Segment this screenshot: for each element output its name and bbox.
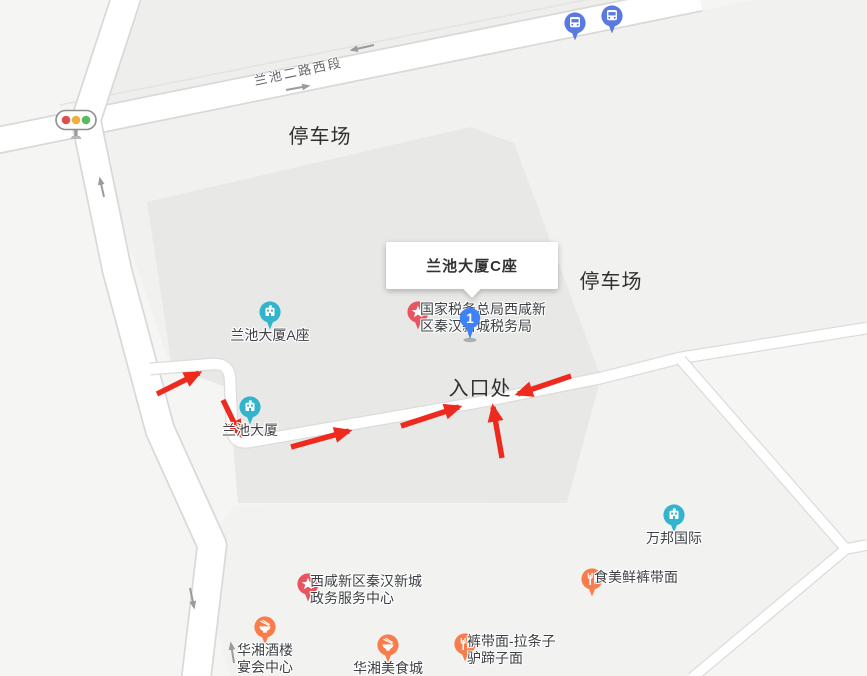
bus-icon <box>562 11 588 45</box>
poi-label: 华湘酒楼宴会中心 <box>237 642 293 676</box>
bus-icon <box>599 4 625 38</box>
poi-pin-lanchi-tower[interactable]: 兰池大厦 <box>237 395 263 429</box>
destination-popup[interactable]: 兰池大厦C座 <box>386 242 558 289</box>
poi-pin-kudaimian-noodles[interactable]: 裤带面-拉条子驴蹄子面 <box>452 632 478 666</box>
popup-title: 兰池大厦C座 <box>422 255 522 276</box>
poi-label: 华湘美食城 <box>353 660 423 676</box>
svg-text:1: 1 <box>466 311 474 326</box>
poi-label: 兰池大厦 <box>222 422 278 439</box>
popup-tail <box>463 279 481 297</box>
poi-label: 国家税务总局西咸新区秦汉新城税务局 <box>420 301 546 335</box>
poi-label: 裤带面-拉条子驴蹄子面 <box>467 633 556 667</box>
poi-label: 兰池大厦A座 <box>230 327 309 344</box>
poi-pin-huaxiang-food-city[interactable]: 华湘美食城 <box>375 633 401 667</box>
poi-pin-gov-service-center[interactable]: 西咸新区秦汉新城政务服务中心 <box>295 572 321 606</box>
poi-pin-lanchi-tower-a[interactable]: 兰池大厦A座 <box>257 300 283 334</box>
poi-pin-huaxiang-banquet[interactable]: 华湘酒楼宴会中心 <box>252 615 278 649</box>
route-marker-icon: 1 <box>457 307 483 343</box>
route-marker-1[interactable]: 1 <box>457 307 483 341</box>
poi-label: 食美鲜裤带面 <box>594 569 678 586</box>
poi-pin-shimeixian-noodles[interactable]: 食美鲜裤带面 <box>579 567 605 601</box>
poi-label: 西咸新区秦汉新城政务服务中心 <box>310 573 422 607</box>
map-viewport[interactable]: 兰池大厦A座兰池大厦万邦国际国家税务总局西咸新区秦汉新城税务局西咸新区秦汉新城政… <box>0 0 867 676</box>
poi-pin-wanbang-intl[interactable]: 万邦国际 <box>661 503 687 537</box>
bus-stop-1[interactable] <box>562 11 588 45</box>
poi-label: 万邦国际 <box>646 530 702 547</box>
bus-stop-2[interactable] <box>599 4 625 38</box>
poi-pin-tax-bureau[interactable]: 国家税务总局西咸新区秦汉新城税务局 <box>405 300 431 334</box>
